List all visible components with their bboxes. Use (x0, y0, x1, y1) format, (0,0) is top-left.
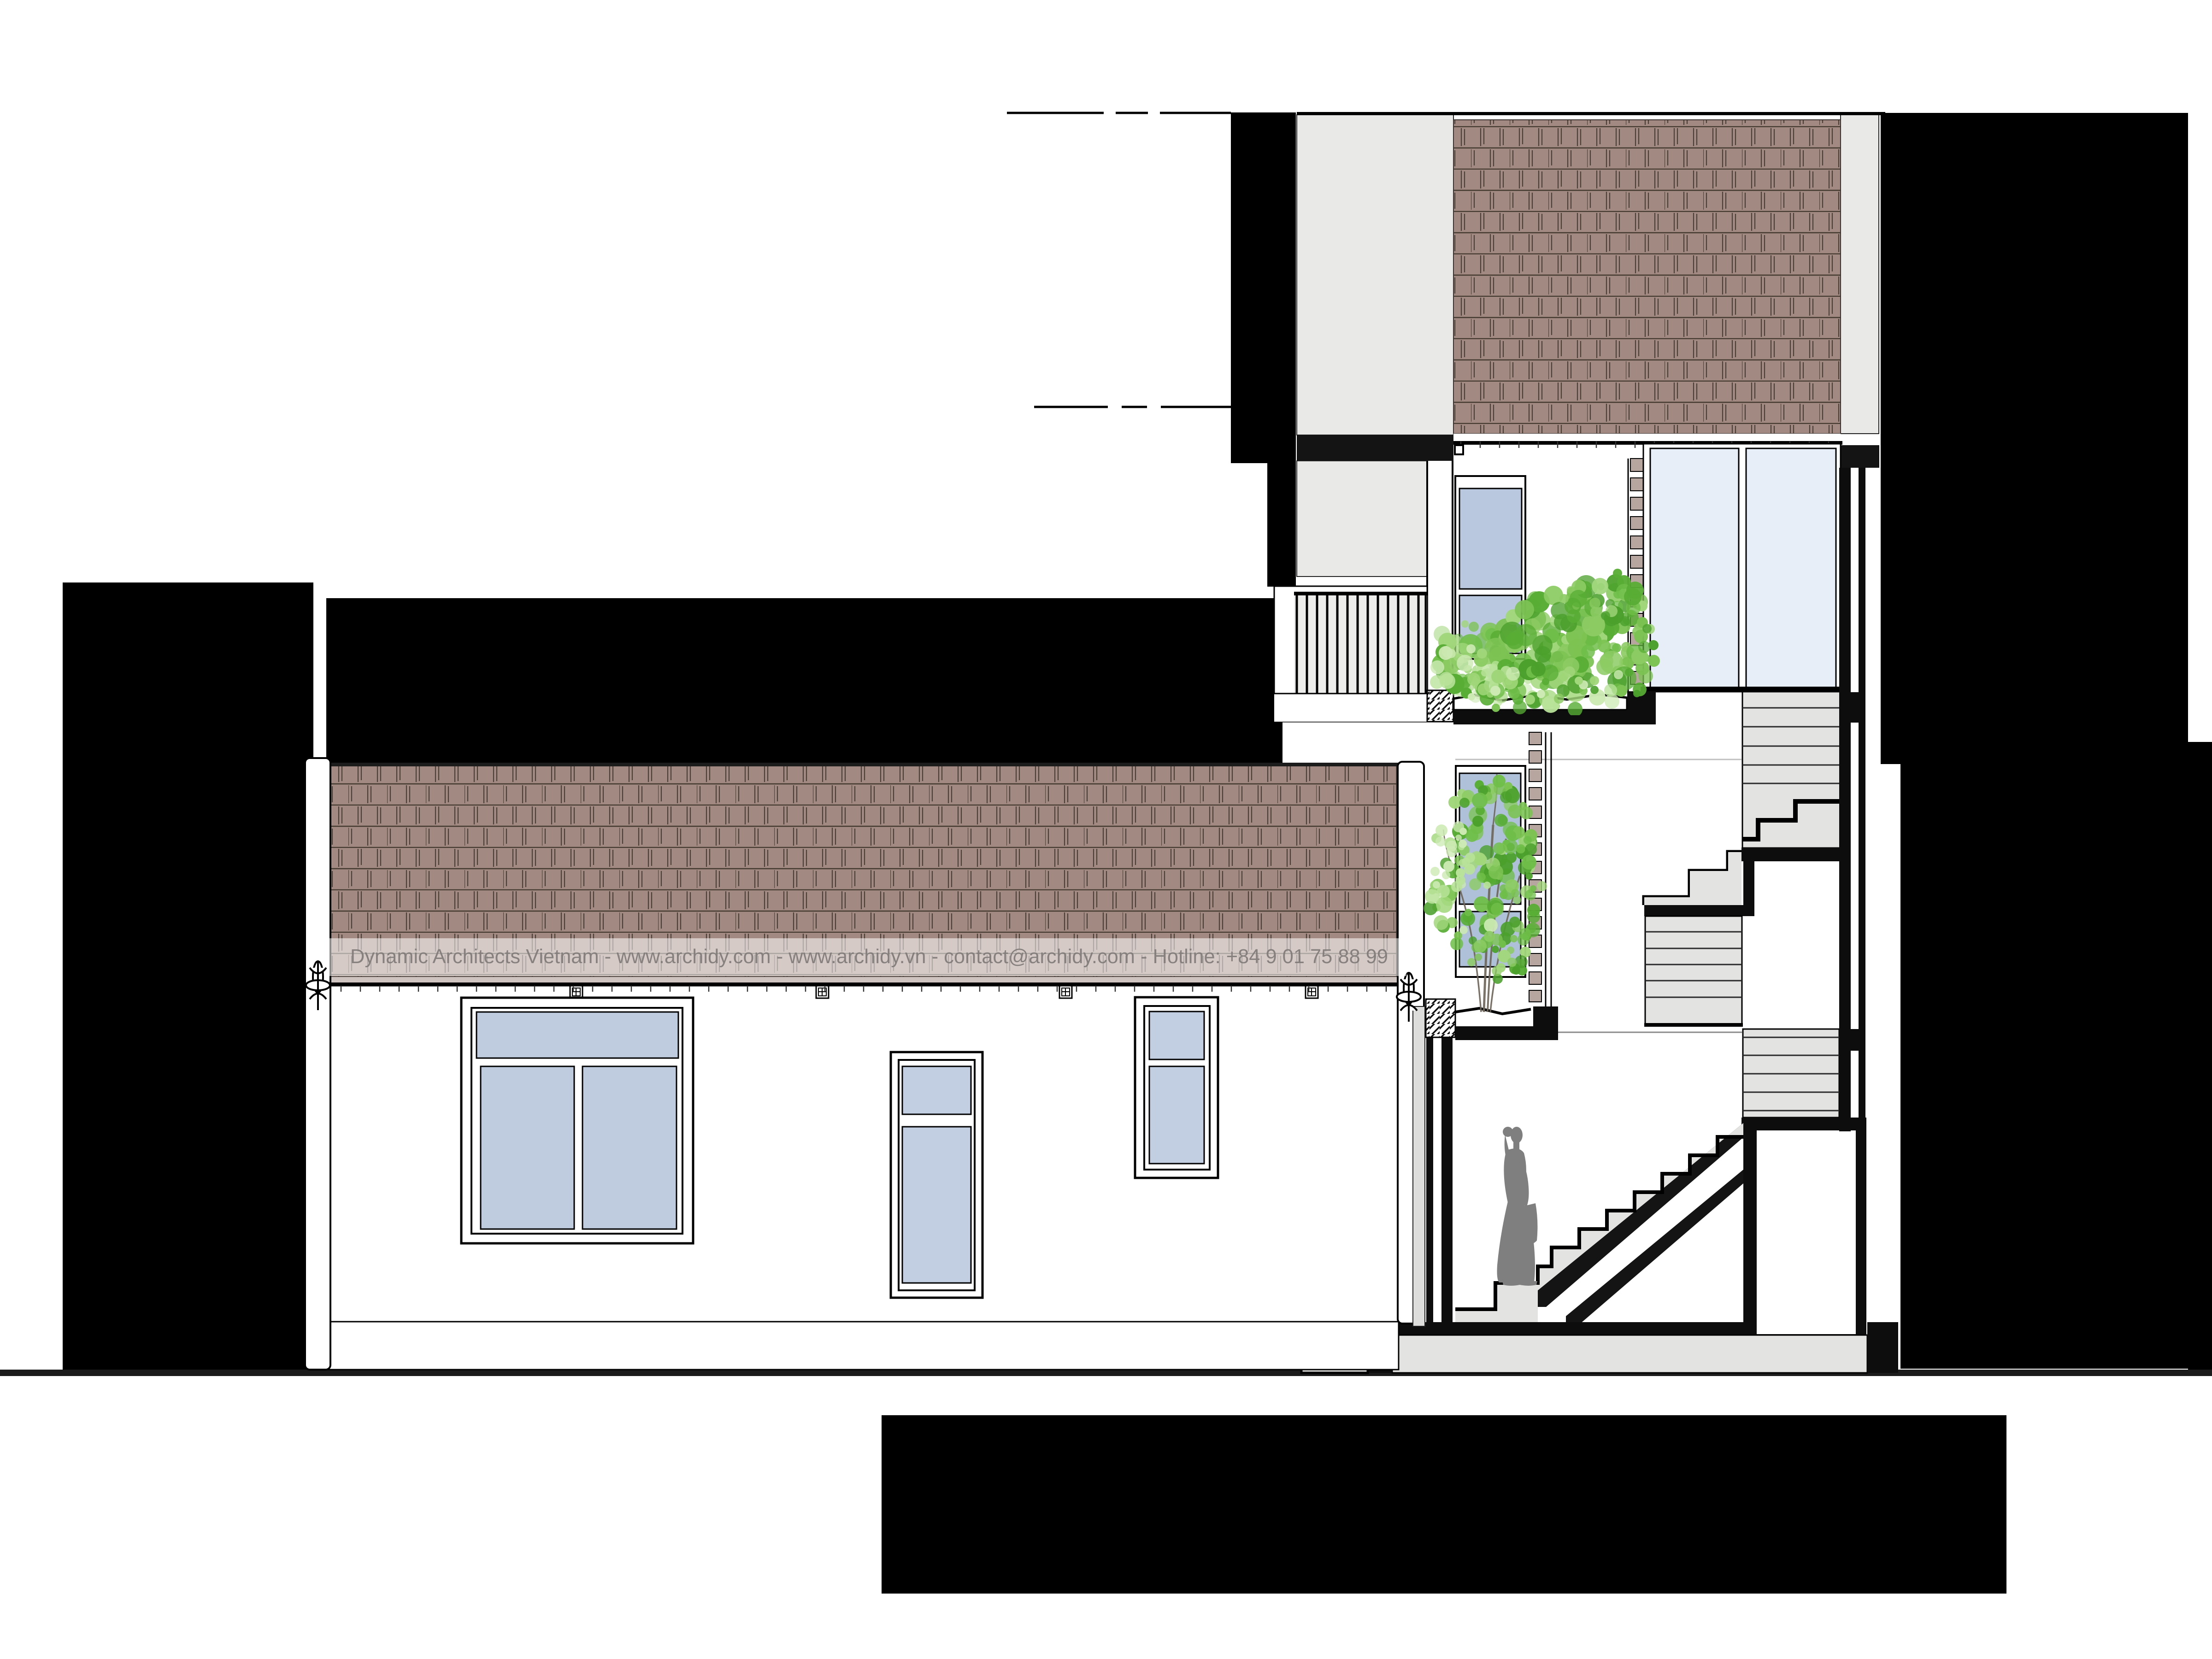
svg-text:Dynamic Architects Vietnam -: Dynamic Architects Vietnam - www.archidy… (350, 945, 1388, 968)
